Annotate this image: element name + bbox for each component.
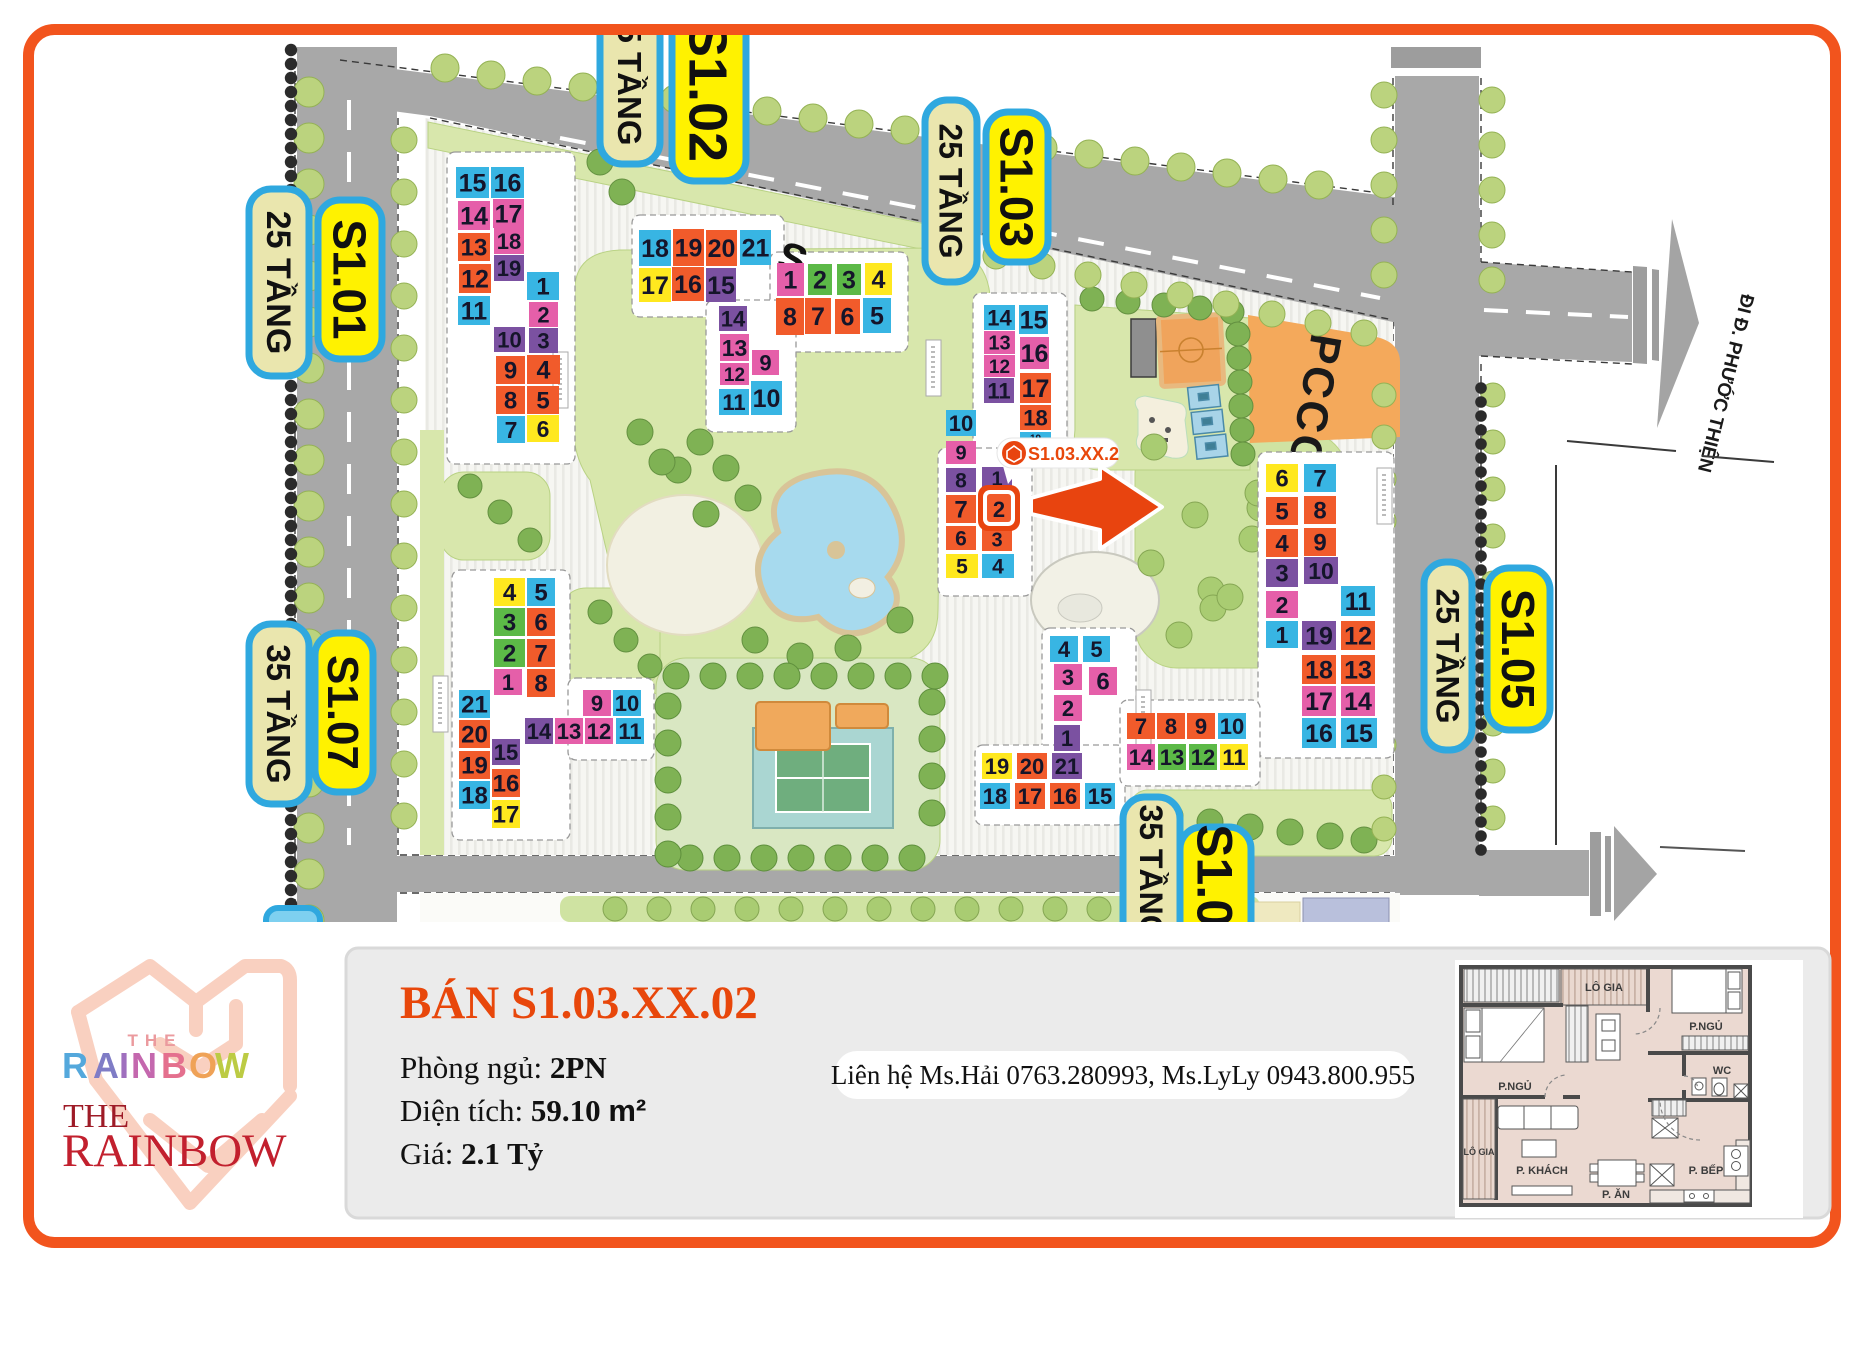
svg-text:14: 14 [721, 306, 746, 331]
svg-text:7: 7 [1135, 714, 1147, 739]
svg-text:10: 10 [949, 411, 973, 436]
svg-text:N: N [131, 1045, 157, 1086]
svg-text:19: 19 [1305, 623, 1333, 651]
svg-text:8: 8 [1165, 714, 1177, 739]
svg-text:P. KHÁCH: P. KHÁCH [1516, 1164, 1568, 1177]
svg-text:7: 7 [811, 303, 825, 331]
svg-text:P. ĂN: P. ĂN [1602, 1188, 1630, 1201]
svg-text:I: I [119, 1045, 129, 1086]
svg-text:P. BẾP: P. BẾP [1689, 1164, 1724, 1177]
svg-text:4: 4 [537, 357, 551, 385]
svg-text:14: 14 [1129, 745, 1154, 770]
svg-text:18: 18 [641, 235, 669, 263]
svg-text:15: 15 [1088, 784, 1112, 809]
svg-text:14: 14 [1344, 688, 1372, 716]
svg-text:14: 14 [527, 719, 552, 744]
svg-text:13: 13 [988, 333, 1010, 355]
svg-text:2: 2 [1276, 592, 1289, 618]
svg-text:R: R [62, 1045, 88, 1086]
svg-text:S1.02: S1.02 [678, 21, 738, 162]
svg-text:13: 13 [461, 235, 488, 262]
svg-text:11: 11 [722, 390, 745, 415]
svg-text:3: 3 [503, 610, 516, 637]
svg-text:6: 6 [537, 416, 550, 442]
svg-text:7: 7 [954, 497, 967, 524]
svg-text:18: 18 [983, 784, 1007, 809]
svg-text:12: 12 [724, 365, 745, 386]
svg-text:13: 13 [557, 719, 581, 744]
svg-text:6: 6 [1096, 669, 1109, 696]
svg-text:10: 10 [753, 385, 781, 413]
svg-text:9: 9 [955, 443, 966, 465]
svg-text:P.NGỦ: P.NGỦ [1498, 1080, 1531, 1093]
svg-text:8: 8 [783, 304, 797, 332]
svg-text:S1.03.XX.2: S1.03.XX.2 [1028, 444, 1119, 464]
svg-text:4: 4 [872, 266, 886, 294]
svg-text:16: 16 [493, 771, 520, 798]
svg-text:21: 21 [461, 692, 488, 719]
svg-text:17: 17 [1018, 784, 1042, 809]
svg-text:17: 17 [1305, 688, 1333, 716]
svg-text:4: 4 [992, 556, 1004, 579]
svg-text:LÔ GIA: LÔ GIA [1464, 1146, 1495, 1157]
svg-text:4: 4 [1058, 637, 1071, 662]
svg-text:1: 1 [784, 267, 798, 295]
svg-text:16: 16 [674, 271, 702, 299]
svg-text:6: 6 [1275, 466, 1288, 493]
svg-text:12: 12 [1191, 745, 1215, 770]
svg-text:3: 3 [1275, 561, 1288, 588]
svg-text:1: 1 [1061, 726, 1073, 751]
svg-text:17: 17 [495, 201, 523, 229]
svg-text:S1.01: S1.01 [323, 219, 375, 339]
svg-text:13: 13 [722, 335, 748, 361]
svg-text:6: 6 [841, 304, 855, 332]
svg-text:15: 15 [1345, 720, 1373, 748]
svg-text:8: 8 [534, 671, 547, 698]
svg-text:3: 3 [1062, 665, 1074, 690]
svg-text:2: 2 [503, 641, 516, 668]
svg-text:20: 20 [1020, 754, 1044, 779]
svg-text:6: 6 [955, 528, 967, 551]
svg-text:9: 9 [1195, 714, 1207, 739]
svg-text:10: 10 [1220, 714, 1244, 739]
svg-text:25 TẦNG: 25 TẦNG [1429, 588, 1465, 723]
svg-text:16: 16 [494, 170, 522, 198]
svg-text:11: 11 [987, 378, 1010, 403]
svg-text:11: 11 [1222, 745, 1245, 770]
svg-text:15: 15 [1020, 307, 1048, 335]
svg-text:16: 16 [1021, 340, 1049, 368]
svg-text:19: 19 [675, 235, 703, 263]
svg-text:RAINBOW: RAINBOW [62, 1125, 287, 1177]
svg-text:35 TẦNG: 35 TẦNG [260, 644, 297, 783]
svg-text:21: 21 [742, 235, 770, 263]
svg-text:4: 4 [1275, 531, 1289, 558]
svg-text:S1.05: S1.05 [1492, 589, 1544, 709]
svg-text:10: 10 [615, 691, 639, 716]
svg-text:11: 11 [461, 298, 488, 326]
svg-text:5: 5 [1090, 637, 1102, 662]
svg-text:12: 12 [1344, 623, 1372, 651]
svg-text:17: 17 [1022, 375, 1050, 403]
svg-text:15: 15 [707, 272, 735, 300]
svg-text:7: 7 [1313, 466, 1326, 493]
svg-text:Phòng ngủ: 2PN: Phòng ngủ: 2PN [400, 1050, 607, 1085]
svg-text:16: 16 [1053, 784, 1077, 809]
svg-text:12: 12 [989, 357, 1010, 378]
svg-text:LÔ GIA: LÔ GIA [1585, 981, 1623, 994]
svg-text:1: 1 [1276, 622, 1289, 648]
svg-text:19: 19 [497, 256, 521, 281]
svg-text:9: 9 [591, 691, 603, 716]
svg-text:9: 9 [759, 350, 771, 375]
svg-text:3: 3 [537, 328, 549, 353]
svg-text:6: 6 [534, 610, 547, 637]
svg-text:Giá: 2.1 Tỷ: Giá: 2.1 Tỷ [400, 1136, 544, 1171]
svg-text:BÁN S1.03.XX.02: BÁN S1.03.XX.02 [400, 977, 758, 1029]
svg-text:18: 18 [1023, 405, 1047, 430]
svg-text:5: 5 [956, 556, 968, 579]
svg-text:B: B [161, 1045, 187, 1086]
svg-text:5: 5 [534, 580, 547, 607]
svg-text:3: 3 [991, 530, 1002, 552]
svg-text:7: 7 [505, 417, 518, 443]
svg-text:11: 11 [618, 719, 641, 744]
svg-text:17: 17 [493, 802, 520, 829]
svg-text:15: 15 [459, 170, 487, 198]
svg-text:10: 10 [1308, 558, 1334, 584]
svg-text:14: 14 [987, 305, 1012, 330]
svg-text:4: 4 [503, 580, 517, 607]
svg-text:19: 19 [461, 753, 488, 780]
svg-text:19: 19 [985, 754, 1009, 779]
svg-text:1: 1 [502, 670, 514, 695]
svg-text:8: 8 [955, 470, 967, 493]
svg-text:11: 11 [1345, 588, 1372, 616]
svg-text:WC: WC [1713, 1065, 1731, 1077]
svg-text:12: 12 [587, 719, 611, 744]
svg-text:18: 18 [461, 783, 488, 810]
svg-text:O: O [189, 1045, 217, 1086]
svg-text:17: 17 [641, 272, 669, 300]
svg-text:14: 14 [460, 203, 488, 231]
svg-text:25 TẦNG: 25 TẦNG [932, 123, 968, 258]
svg-text:18: 18 [1305, 657, 1333, 685]
svg-text:Liên hệ Ms.Hải 0763.280993, Ms: Liên hệ Ms.Hải 0763.280993, Ms.LyLy 0943… [831, 1060, 1415, 1090]
svg-text:10: 10 [497, 327, 521, 352]
svg-text:35 TẦNG: 35 TẦNG [1133, 804, 1169, 939]
svg-text:18: 18 [497, 229, 521, 254]
svg-text:A: A [93, 1045, 119, 1086]
svg-text:7: 7 [534, 641, 547, 668]
svg-text:5 TẦNG: 5 TẦNG [611, 24, 648, 145]
svg-text:20: 20 [461, 722, 488, 749]
svg-text:12: 12 [461, 266, 489, 294]
svg-text:W: W [215, 1045, 249, 1086]
svg-text:1: 1 [536, 274, 549, 301]
svg-text:13: 13 [1344, 657, 1372, 685]
svg-text:5: 5 [536, 388, 549, 415]
svg-text:S1.07: S1.07 [318, 655, 367, 770]
svg-text:3: 3 [842, 267, 856, 295]
svg-text:9: 9 [1313, 530, 1326, 557]
svg-text:21: 21 [1055, 754, 1079, 779]
svg-text:8: 8 [504, 388, 517, 415]
svg-text:2: 2 [813, 267, 827, 295]
svg-text:Diện tích: 59.10 m²: Diện tích: 59.10 m² [400, 1093, 646, 1128]
svg-text:P.NGỦ: P.NGỦ [1689, 1020, 1722, 1033]
svg-text:2: 2 [993, 497, 1005, 522]
svg-text:16: 16 [1305, 720, 1333, 748]
svg-text:9: 9 [504, 358, 517, 385]
svg-text:5: 5 [1275, 499, 1288, 526]
svg-text:15: 15 [494, 740, 518, 765]
svg-text:2: 2 [1062, 696, 1074, 721]
svg-text:25 TẦNG: 25 TẦNG [259, 211, 297, 355]
svg-text:13: 13 [1160, 745, 1184, 770]
svg-text:S1.03: S1.03 [990, 127, 1042, 247]
svg-text:2: 2 [537, 302, 549, 327]
svg-text:5: 5 [870, 303, 884, 331]
svg-text:20: 20 [708, 235, 736, 263]
svg-text:8: 8 [1313, 498, 1326, 525]
